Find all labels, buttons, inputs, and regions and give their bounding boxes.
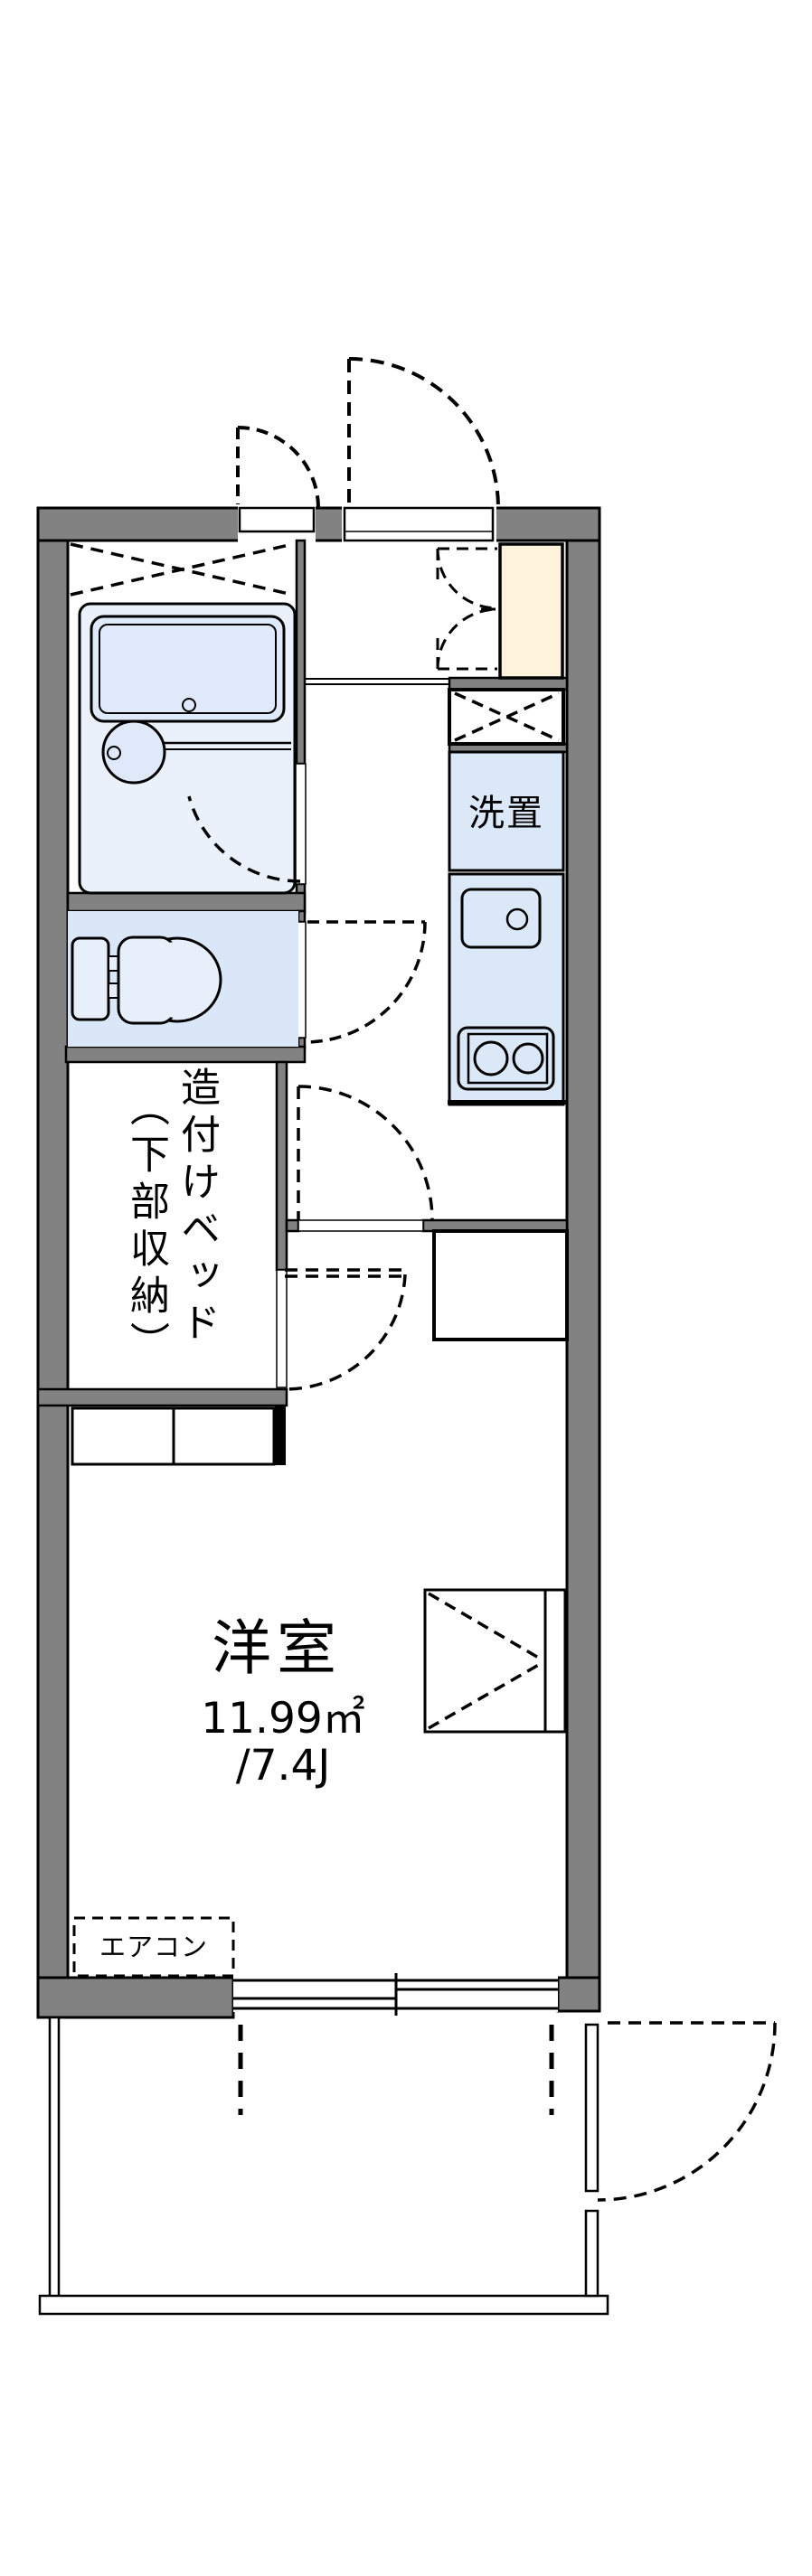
room-door-swing xyxy=(298,1086,432,1220)
bed-door-swing xyxy=(285,1274,405,1389)
toilet-room xyxy=(68,911,425,1047)
wall-top xyxy=(38,508,600,541)
balcony-rail-left xyxy=(50,2017,59,2298)
bed-label: 造付けベッド （下部収納） xyxy=(118,1067,222,1383)
toilet-tank xyxy=(72,938,109,1020)
entrance-threshold xyxy=(345,508,493,541)
storage-door-threshold xyxy=(240,508,314,531)
wall-left xyxy=(38,508,68,2017)
wall-toilet-bed xyxy=(66,1047,305,1062)
washer-label: 洗置 xyxy=(449,784,563,836)
room-label: 洋室 xyxy=(159,1600,394,1687)
bed-label-line2: （下部収納） xyxy=(120,1067,171,1383)
counter-post xyxy=(275,1406,286,1465)
balcony-rail-bottom xyxy=(40,2296,608,2314)
wall-toilet-stub-top xyxy=(298,911,305,922)
top-wall-openings xyxy=(238,505,496,543)
room-area-tatami: /7.4J xyxy=(147,1741,419,1791)
toilet-door-swing xyxy=(305,922,425,1042)
entrance-door-swing xyxy=(349,359,498,508)
wall-bed-hall xyxy=(277,1062,287,1270)
wall-hall-room-stub xyxy=(287,1220,298,1231)
hall-doors xyxy=(285,1086,432,1389)
kitchen-column xyxy=(448,690,567,1105)
toilet-bowl-fill xyxy=(137,942,217,1018)
shoe-cabinet xyxy=(500,544,562,678)
bed-label-line1: 造付けベッド xyxy=(171,1067,222,1383)
aircon-label: エアコン xyxy=(74,1926,233,1964)
toilet-door-opening xyxy=(297,922,306,1038)
utility-box xyxy=(434,1231,567,1340)
door-openings xyxy=(277,764,423,1387)
kitchen-edge-bar xyxy=(448,1100,567,1105)
room-area-m2: 11.99㎡ xyxy=(147,1683,419,1745)
wall-right xyxy=(567,508,600,2011)
wall-bath-toilet xyxy=(68,893,305,911)
storage-door-swing xyxy=(238,428,318,508)
room-doorway xyxy=(298,1220,423,1231)
balcony-door-swing xyxy=(598,2023,775,2200)
bathroom xyxy=(71,544,300,893)
balcony xyxy=(40,2017,775,2314)
wall-bed-room xyxy=(38,1389,287,1406)
wall-bottom-left xyxy=(38,1978,233,2017)
bed-door-opening xyxy=(277,1270,287,1387)
wall-bath-hall xyxy=(297,541,305,764)
floor-plan: 洗置 造付けベッド （下部収納） 洋室 11.99㎡ /7.4J エアコン xyxy=(0,0,812,2576)
wall-bottom-right xyxy=(558,1978,600,2011)
balcony-rail-right xyxy=(586,2025,598,2191)
washbasin xyxy=(103,721,165,783)
balcony-rail-right xyxy=(586,2211,598,2296)
window xyxy=(233,1973,558,2016)
bathtub xyxy=(91,616,284,721)
bath-door-opening xyxy=(296,764,306,884)
